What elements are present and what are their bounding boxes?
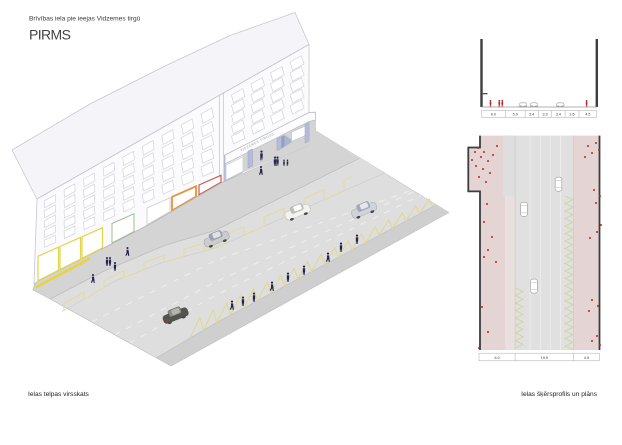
svg-text:3.5: 3.5 [569,113,574,117]
svg-text:6.0: 6.0 [495,356,500,360]
svg-text:6.0: 6.0 [491,113,496,117]
svg-text:Ielas šķērsprofils un plāns: Ielas šķērsprofils un plāns [521,391,598,398]
svg-text:5.0: 5.0 [513,113,518,117]
svg-text:Brīvības iela pie ieejas Vidze: Brīvības iela pie ieejas Vidzemes tirgū [29,16,141,23]
svg-text:PIRMS: PIRMS [29,27,71,43]
svg-text:3.4: 3.4 [556,113,561,117]
svg-text:4.5: 4.5 [584,356,589,360]
svg-text:Ielas telpas virsskats: Ielas telpas virsskats [28,391,90,398]
svg-text:3.3: 3.3 [543,113,548,117]
svg-text:4.5: 4.5 [585,113,590,117]
svg-text:19.5: 19.5 [541,356,548,360]
svg-text:3.4: 3.4 [529,113,534,117]
